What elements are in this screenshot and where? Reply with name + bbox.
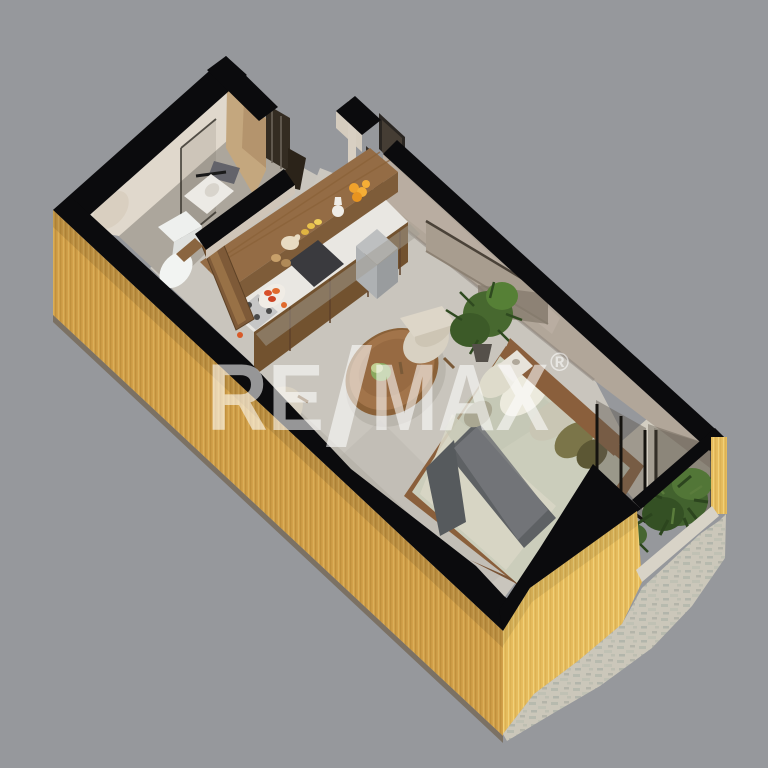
svg-text:MAX: MAX bbox=[371, 345, 549, 451]
svg-text:®: ® bbox=[550, 347, 569, 377]
svg-text:RE: RE bbox=[207, 345, 324, 451]
